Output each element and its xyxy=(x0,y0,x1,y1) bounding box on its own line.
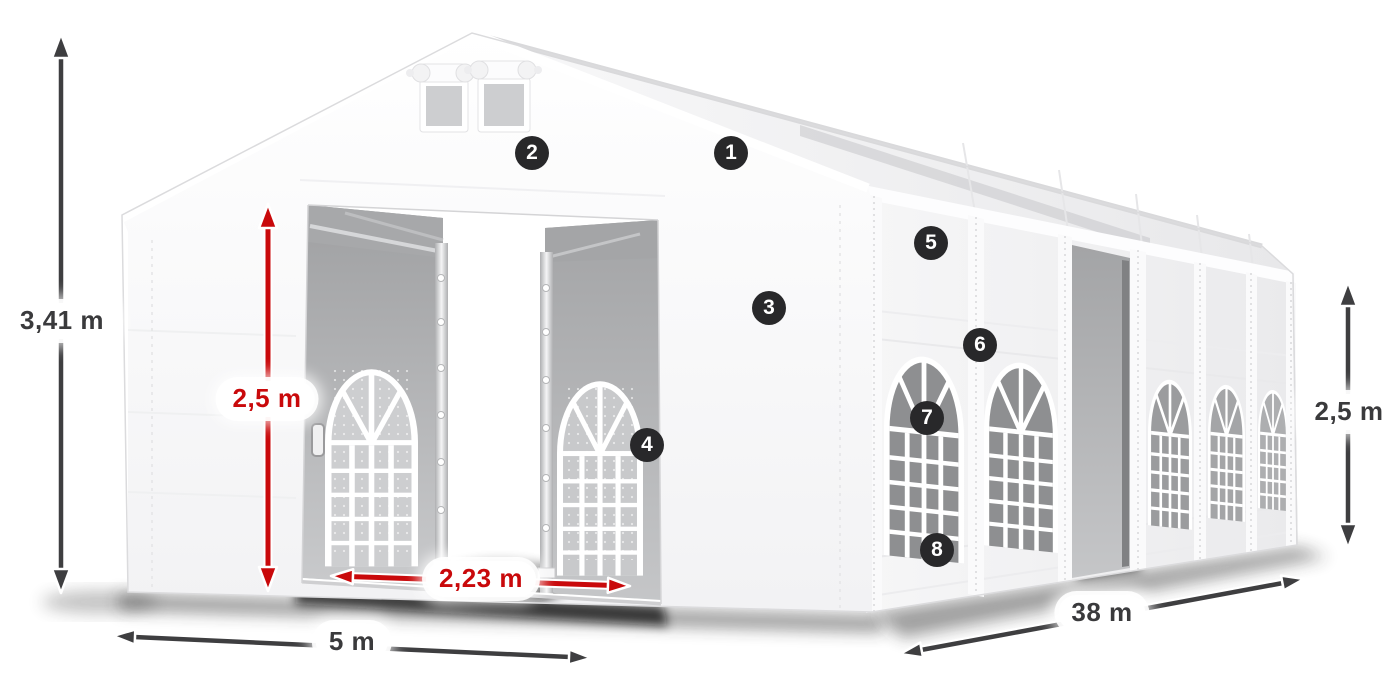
dimension-label-side-length: 38 m xyxy=(1058,595,1145,631)
dimension-label-front-width: 5 m xyxy=(316,624,388,660)
side-window xyxy=(984,359,1058,553)
callout-badge-8: 8 xyxy=(920,533,954,567)
dimension-label-side-height: 2,5 m xyxy=(1302,394,1397,430)
door-handle xyxy=(312,424,324,456)
dimension-label-total-height: 3,41 m xyxy=(7,303,117,339)
callout-badge-4: 4 xyxy=(630,428,664,462)
interior-right-door xyxy=(545,220,661,604)
side-doorway-opening xyxy=(1072,245,1130,578)
callout-badge-6: 6 xyxy=(963,328,997,362)
callout-badge-3: 3 xyxy=(752,291,786,325)
entrance-opening xyxy=(302,205,661,605)
callout-badge-7: 7 xyxy=(910,401,944,435)
callout-badge-5: 5 xyxy=(914,226,948,260)
side-window xyxy=(1258,388,1288,511)
side-window xyxy=(884,353,964,564)
dimension-label-entrance-width: 2,23 m xyxy=(426,561,536,597)
callout-badge-2: 2 xyxy=(515,136,549,170)
interior-left-door xyxy=(302,205,443,588)
side-window xyxy=(1208,383,1245,522)
side-window xyxy=(1148,377,1192,529)
tent-dimension-diagram: 3,41 m 2,5 m 2,23 m 5 m 38 m 2,5 m 1 2 3… xyxy=(0,0,1400,700)
dimension-label-entrance-height: 2,5 m xyxy=(220,381,315,417)
callout-badge-1: 1 xyxy=(714,136,748,170)
tent-illustration xyxy=(0,0,1400,700)
